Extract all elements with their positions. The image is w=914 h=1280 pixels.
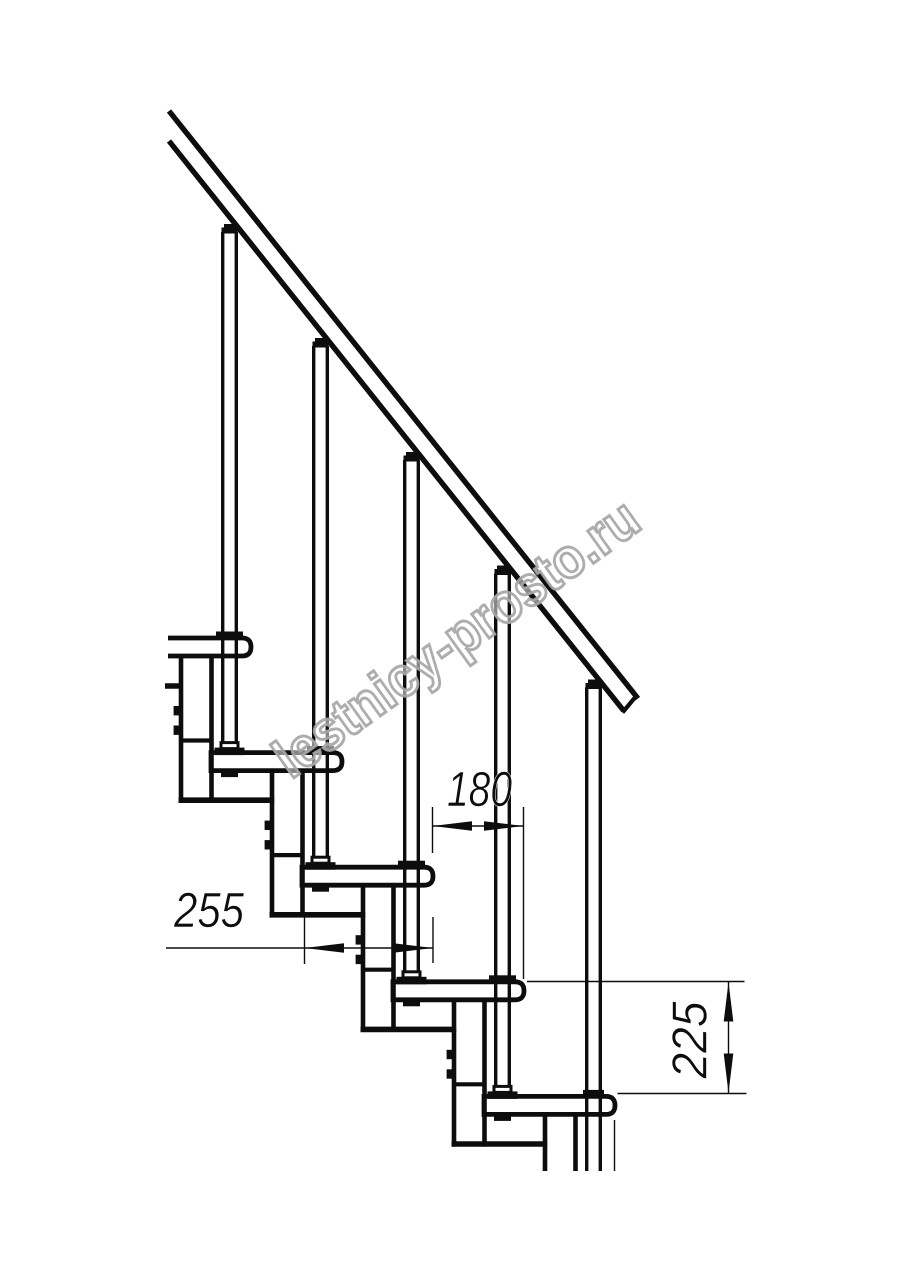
svg-text:225: 225 [663, 1001, 718, 1079]
svg-text:180: 180 [447, 762, 512, 817]
svg-text:255: 255 [173, 883, 244, 938]
